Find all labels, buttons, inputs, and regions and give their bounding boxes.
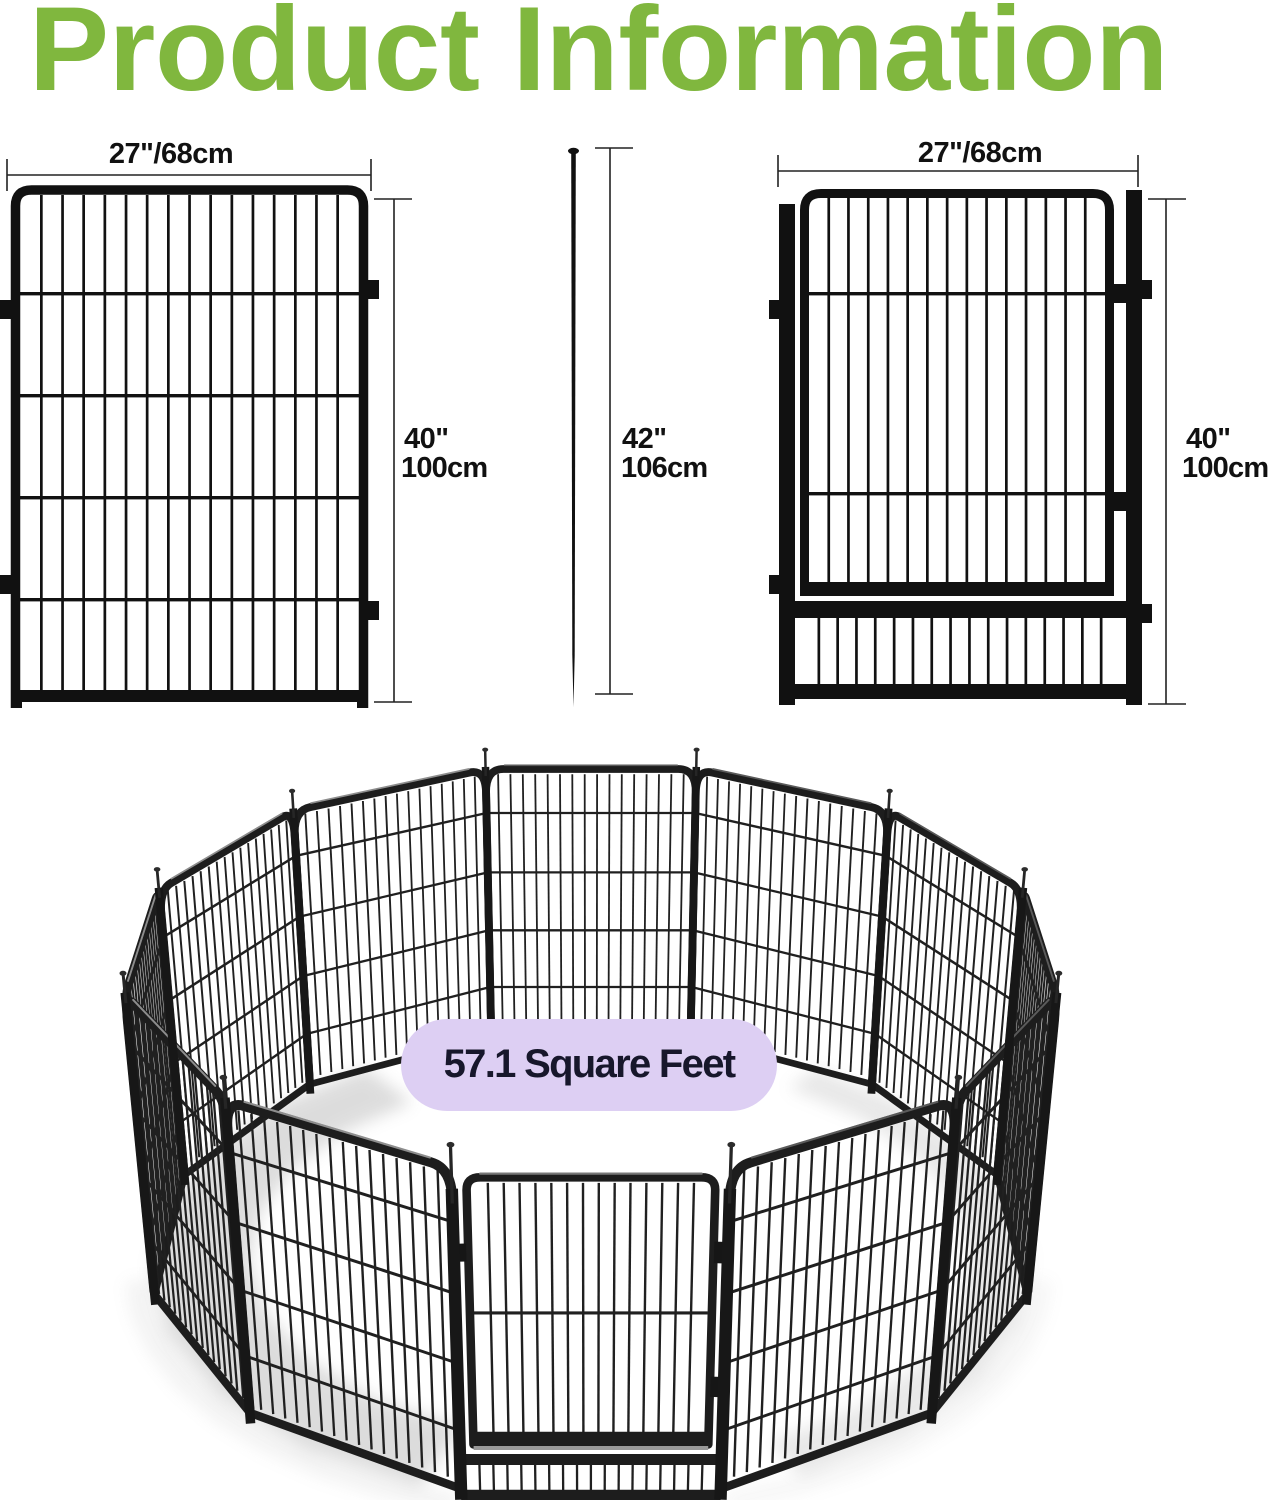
svg-text:42": 42" bbox=[622, 423, 667, 455]
svg-text:57.1 Square Feet: 57.1 Square Feet bbox=[444, 1042, 736, 1086]
svg-text:40": 40" bbox=[404, 423, 449, 455]
svg-text:27"/68cm: 27"/68cm bbox=[918, 137, 1042, 169]
svg-text:40": 40" bbox=[1186, 423, 1231, 455]
svg-text:100cm: 100cm bbox=[1182, 452, 1268, 484]
svg-text:106cm: 106cm bbox=[621, 452, 707, 484]
svg-text:100cm: 100cm bbox=[401, 452, 487, 484]
svg-text:27"/68cm: 27"/68cm bbox=[109, 138, 233, 170]
